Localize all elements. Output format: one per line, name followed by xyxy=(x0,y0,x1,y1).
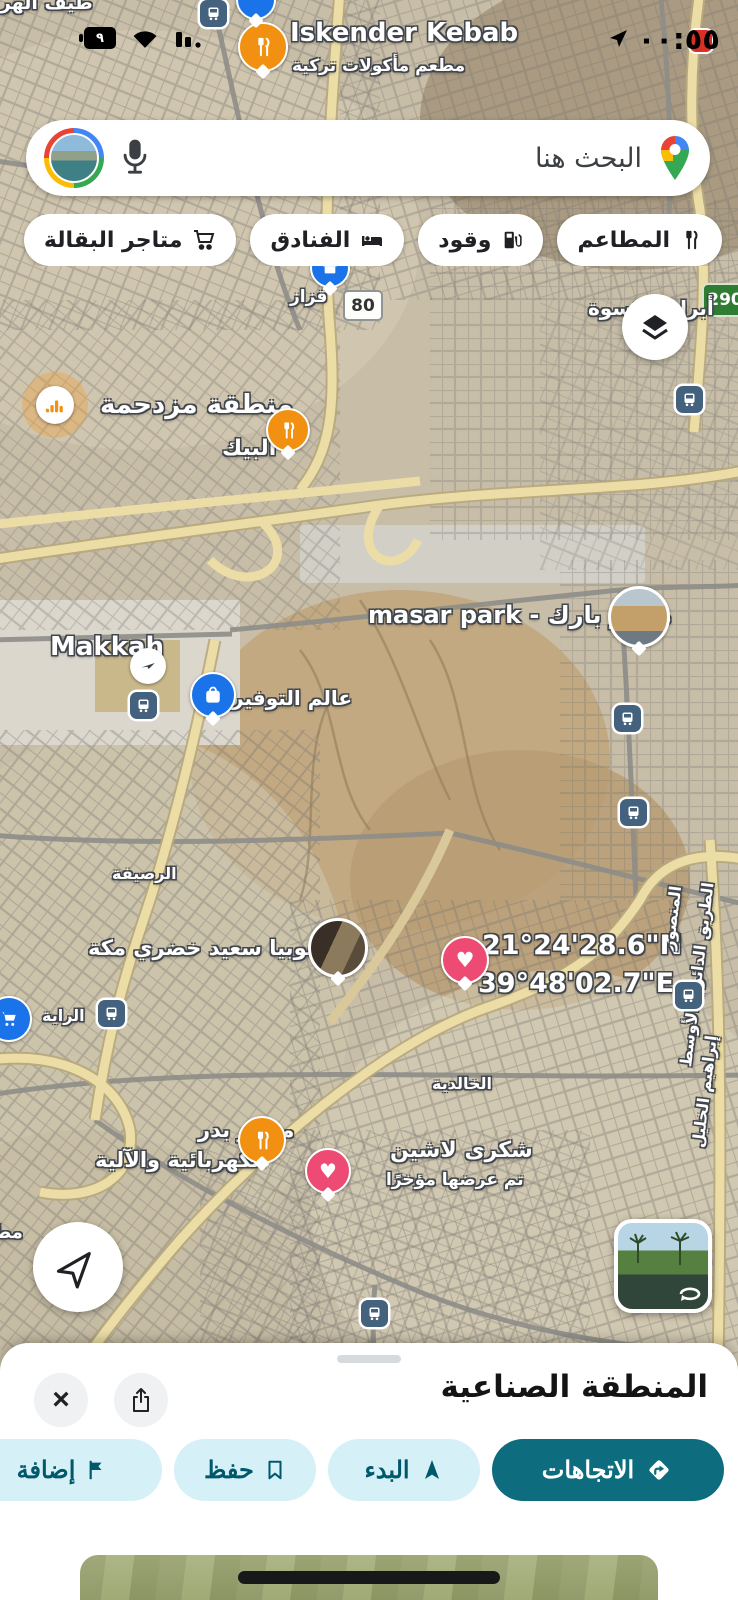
station-icon-makkah[interactable] xyxy=(130,648,166,684)
street-view-360-icon xyxy=(677,1284,703,1304)
restaurant-icon xyxy=(680,229,702,251)
chip-label: متاجر البقالة xyxy=(44,228,183,253)
signal-icon xyxy=(174,26,204,50)
bus-station-icon[interactable] xyxy=(676,386,703,413)
restaurant-pin-bakery[interactable] xyxy=(238,1116,286,1164)
train-station-icon[interactable] xyxy=(98,1000,125,1027)
layers-icon xyxy=(638,310,672,344)
google-maps-screen: طيف الهرم Iskender Kebab مطعم مأكولات تر… xyxy=(0,0,738,1600)
wifi-icon xyxy=(130,26,160,50)
layers-button[interactable] xyxy=(622,294,688,360)
chip-label: وقود xyxy=(438,228,491,253)
place-bottom-sheet: المنطقة الصناعية × الاتجاهات البدء حفظ xyxy=(0,1343,738,1600)
bus-station-icon[interactable] xyxy=(361,1300,388,1327)
chip-label: المطاعم xyxy=(577,228,670,253)
bus-station-icon[interactable] xyxy=(614,705,641,732)
navigation-arrow-icon xyxy=(48,1237,107,1296)
place-photo[interactable] xyxy=(80,1555,658,1600)
navigation-arrow-icon xyxy=(420,1458,444,1482)
chip-label: الفنادق xyxy=(270,228,350,253)
map-label-alam-altawfir[interactable]: عالم التوفير xyxy=(232,686,352,710)
directions-icon xyxy=(644,1455,674,1485)
heart-icon: ♥ xyxy=(319,1159,337,1183)
fuel-icon xyxy=(501,229,523,251)
fork-knife-icon xyxy=(252,1130,273,1151)
road-label-alkhalidiyyah: الخالدية xyxy=(432,1074,492,1093)
add-label-text: إضافة xyxy=(17,1456,76,1485)
battery-icon: ٩ xyxy=(84,27,116,49)
directions-button[interactable]: الاتجاهات xyxy=(492,1439,724,1501)
drag-handle[interactable] xyxy=(337,1355,401,1363)
share-button[interactable] xyxy=(114,1373,168,1427)
start-label: البدء xyxy=(364,1456,409,1485)
saved-heart-pin-shukri[interactable]: ♥ xyxy=(305,1148,351,1194)
restaurant-pin-albaik[interactable] xyxy=(266,408,310,452)
place-title: المنطقة الصناعية xyxy=(440,1369,708,1405)
map-label-busy-area[interactable]: منطقة مزدحمة xyxy=(100,390,293,420)
bar-chart-icon xyxy=(44,394,66,416)
status-bar: ٩ ٠٠:٥٥ xyxy=(0,0,738,56)
category-chip-row: المطاعم وقود الفنادق متاجر البقالة xyxy=(0,214,738,266)
save-button[interactable]: حفظ xyxy=(174,1439,316,1501)
account-avatar[interactable] xyxy=(44,128,104,188)
heart-icon: ♥ xyxy=(456,948,475,972)
map-label-subya[interactable]: سوبيا سعيد خضري مكة xyxy=(88,936,327,960)
search-input[interactable]: البحث هنا xyxy=(168,143,642,174)
road-label-alrusayfah: الرصيفة xyxy=(112,864,177,883)
route-badge-80: 80 xyxy=(343,290,383,321)
chip-restaurants[interactable]: المطاعم xyxy=(557,214,722,266)
close-icon: × xyxy=(52,1385,70,1415)
bookmark-icon xyxy=(264,1458,286,1482)
chip-grocery[interactable]: متاجر البقالة xyxy=(24,214,237,266)
photo-pin-subya[interactable] xyxy=(308,918,368,978)
coordinate-label-lat: 21°24'28.6"N xyxy=(482,930,682,961)
gesture-bar[interactable] xyxy=(238,1571,500,1584)
my-location-button[interactable] xyxy=(33,1222,123,1312)
chip-fuel[interactable]: وقود xyxy=(418,214,543,266)
saved-heart-pin-coordinates[interactable]: ♥ xyxy=(441,936,489,984)
palm-trees xyxy=(618,1223,712,1283)
close-button[interactable]: × xyxy=(34,1373,88,1427)
fork-knife-icon xyxy=(279,421,298,440)
bus-station-icon[interactable] xyxy=(620,799,647,826)
map-label-qazaz[interactable]: قزاز xyxy=(290,287,327,307)
avatar-photo xyxy=(49,133,99,183)
photo-pin-masar-park[interactable] xyxy=(608,586,670,648)
directions-label: الاتجاهات xyxy=(542,1456,634,1485)
action-button-row: الاتجاهات البدء حفظ إضافة xyxy=(0,1439,738,1501)
shopping-pin-alam-altawfir[interactable] xyxy=(190,672,236,718)
road-label-alraya: الراية xyxy=(42,1006,85,1025)
microphone-icon[interactable] xyxy=(118,138,152,178)
location-sharing-icon xyxy=(606,27,630,51)
add-label-button[interactable]: إضافة xyxy=(0,1439,162,1501)
share-icon xyxy=(129,1387,153,1413)
busy-area-icon[interactable] xyxy=(36,386,74,424)
shopping-bag-icon xyxy=(203,685,223,705)
clock-time: ٠٠:٥٥ xyxy=(638,22,720,56)
start-navigation-button[interactable]: البدء xyxy=(328,1439,480,1501)
poi-subtitle-iskender[interactable]: مطعم مأكولات تركية xyxy=(292,56,465,76)
save-label: حفظ xyxy=(204,1456,254,1485)
grocery-cart-icon xyxy=(192,228,216,252)
chip-hotels[interactable]: الفنادق xyxy=(250,214,404,266)
search-bar[interactable]: البحث هنا xyxy=(26,120,710,196)
cart-icon xyxy=(0,1009,19,1029)
coordinate-label-lng: 39°48'02.7"E xyxy=(478,968,674,999)
street-view-thumbnail[interactable] xyxy=(614,1219,712,1313)
bus-station-icon[interactable] xyxy=(675,982,702,1009)
map-label-shukri[interactable]: شكرى لاشين xyxy=(390,1138,533,1163)
bus-station-icon[interactable] xyxy=(130,692,157,719)
google-maps-pin-logo xyxy=(658,135,692,181)
map-label-partial-restaurant: مطعم xyxy=(0,1222,23,1243)
map-label-shukri-sub[interactable]: تم عرضها مؤخرًا xyxy=(386,1170,524,1190)
hotel-bed-icon xyxy=(360,228,384,252)
train-arrow-icon xyxy=(139,657,157,675)
flag-icon xyxy=(85,1458,107,1482)
